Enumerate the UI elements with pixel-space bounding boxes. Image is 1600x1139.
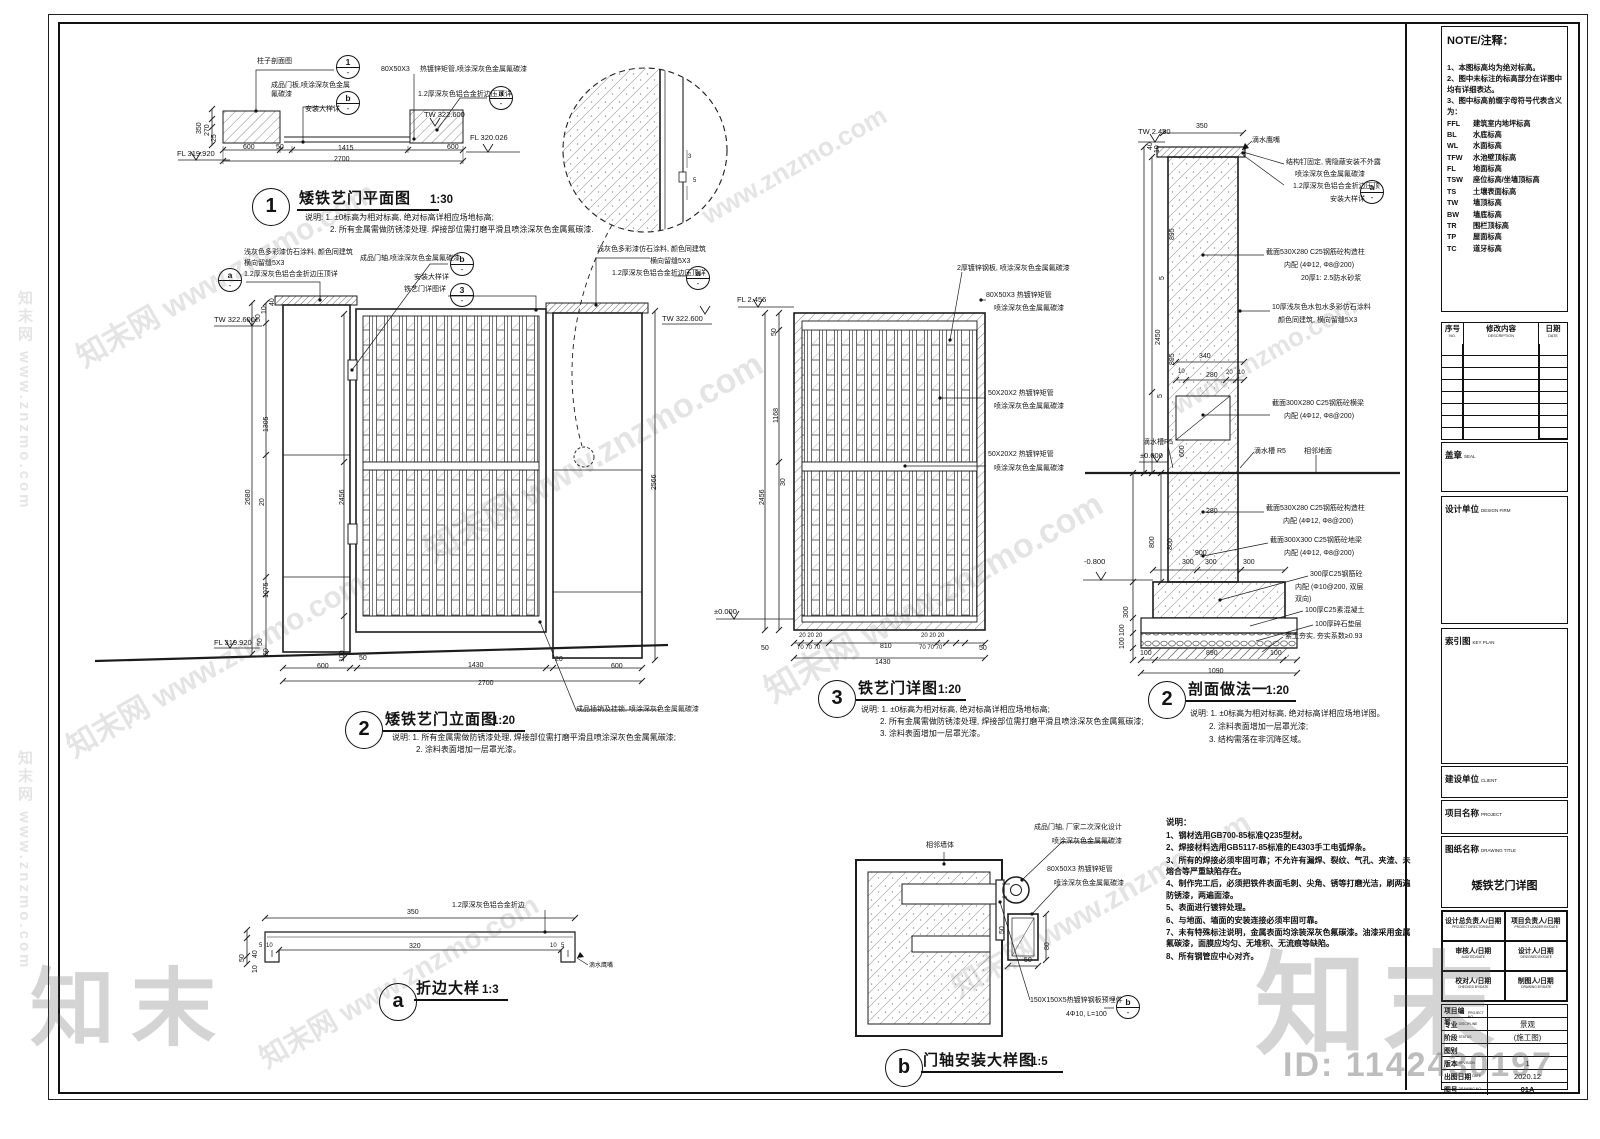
sect-label: 双向) bbox=[1295, 596, 1311, 604]
signature-cell: 制图人/日期DRAWING BY/DATE bbox=[1505, 971, 1568, 1001]
watermark-vertical: 知末网 www.znzmo.com bbox=[14, 750, 35, 970]
client-box: 建设单位CLIENT bbox=[1441, 766, 1568, 798]
dim-label: 70 70 70 bbox=[797, 645, 820, 652]
plan-label: 氟碳漆 bbox=[271, 91, 292, 99]
signature-grid: 设计总负责人/日期PROJECT DIRECTOR/DATE 项目负责人/日期P… bbox=[1441, 910, 1568, 1002]
hinge-label: 喷涂深灰色金属氟碳漆 bbox=[1054, 880, 1124, 888]
drawing-number: 2 bbox=[345, 711, 383, 749]
drawing-note: 说明: 1. 所有金属需做防锈漆处理, 焊接部位需打磨平滑且喷涂深灰色金属氟碳漆… bbox=[392, 733, 676, 742]
dim-label: 10 bbox=[261, 306, 269, 314]
dim-label: 900 bbox=[1195, 550, 1207, 558]
plan-label: 安装大样详 bbox=[305, 106, 340, 114]
detail-callout: 3- bbox=[450, 283, 474, 307]
cad-sheet: 柱子剖面图1-80X50X3热镀锌矩管,喷涂深灰色金属氟碳漆成品门板,喷涂深灰色… bbox=[0, 0, 1600, 1139]
plan-callout-label: 柱子剖面图 bbox=[257, 58, 292, 66]
revision-row bbox=[1441, 404, 1568, 416]
elev-label: 安装大样详 bbox=[414, 274, 449, 282]
plan-label: 成品门板,喷涂深灰色金属 bbox=[271, 82, 350, 90]
meta-table: 项目编号PROJECT NO. 专业DISCIPLINE景观 阶段STATUS(… bbox=[1441, 1004, 1568, 1090]
dim-label: 50 bbox=[999, 926, 1007, 934]
sect-label: 内配 (4Φ12, Φ8@200) bbox=[1283, 518, 1353, 526]
dim-label: 50 bbox=[255, 314, 263, 322]
detail-callout: 1- bbox=[336, 55, 360, 79]
dim-label: 5 bbox=[259, 943, 262, 950]
dim-label: 50 bbox=[1024, 957, 1032, 965]
dim-label: 100 bbox=[339, 650, 347, 662]
general-note: 2、焊接材料选用GB5117-85标准的E4303手工电弧焊条。 bbox=[1166, 842, 1416, 853]
sect-label: 滴水槽R5 bbox=[1143, 439, 1173, 447]
general-note: 5、表面进行镀锌处理。 bbox=[1166, 902, 1416, 913]
dim-label: 10 bbox=[1178, 369, 1185, 376]
dim-label: 800 bbox=[1167, 538, 1175, 550]
revision-row bbox=[1441, 356, 1568, 368]
signature-cell: 校对人/日期CHECKED BY/DATE bbox=[1442, 971, 1505, 1001]
dim-label: 5 bbox=[693, 178, 696, 185]
key-plan-box: 索引图KEY PLAN bbox=[1441, 628, 1568, 764]
revision-row bbox=[1441, 416, 1568, 428]
meta-row: 图别 bbox=[1442, 1044, 1567, 1057]
level-label: TW 322.600 bbox=[424, 111, 465, 120]
dim-label: 20 bbox=[555, 656, 563, 664]
drawing-scale: 1:30 bbox=[430, 194, 453, 207]
gate-label: 喷涂深灰色金属氟碳漆 bbox=[994, 305, 1064, 313]
drawing-scale: 1:20 bbox=[938, 684, 961, 697]
dim-label: 2700 bbox=[478, 680, 494, 688]
plan-label: 80X50X3 bbox=[381, 66, 410, 74]
drawing-number: 3 bbox=[818, 680, 856, 718]
sect-label: 截面530X280 C25钢筋砼构造柱 bbox=[1266, 505, 1365, 513]
sect-label: 100厚碎石垫层 bbox=[1315, 621, 1362, 629]
dim-label: 60 bbox=[263, 648, 271, 656]
meta-row: 出图日期DATE2020.12 bbox=[1442, 1070, 1567, 1083]
dim-label: 40 bbox=[269, 298, 277, 306]
sect-label: 100厚C25素混凝土 bbox=[1305, 607, 1365, 615]
meta-row: 图号DRAWING NO.01A bbox=[1442, 1083, 1567, 1095]
detail-callout: b- bbox=[1116, 995, 1140, 1019]
sect-label: 内配 (4Φ12, Φ8@200) bbox=[1284, 413, 1354, 421]
dim-label: 2680 bbox=[245, 489, 253, 505]
dim-label: 5 bbox=[1157, 394, 1165, 398]
dim-label: 50 bbox=[257, 638, 265, 646]
dim-label: 1305 bbox=[263, 416, 271, 432]
dim-label: 600 bbox=[243, 144, 255, 152]
dim-label: 350 bbox=[1196, 123, 1208, 131]
gate-label: 80X50X3 热镀锌矩管 bbox=[986, 292, 1052, 300]
sect-label: 300厚C25钢筋砼 bbox=[1310, 571, 1363, 579]
dim-label: 40 bbox=[252, 950, 260, 958]
hinge-label: 喷涂深灰色金属氟碳漆 bbox=[1052, 838, 1122, 846]
revision-row bbox=[1441, 392, 1568, 404]
dim-label: 600 bbox=[1179, 445, 1187, 457]
sect-label: 滴水槽 R5 bbox=[1254, 448, 1286, 456]
general-note: 3、所有的焊接必须牢固可靠；不允许有漏焊、裂纹、气孔、夹渣、未熔合等严重缺陷存在… bbox=[1166, 855, 1416, 878]
elev-label: 1.2厚深灰色铝合金折边压顶详 bbox=[244, 271, 338, 279]
dim-label: 2456 bbox=[759, 489, 767, 505]
dim-label: 895 bbox=[1169, 353, 1177, 365]
hinge-label: 4Φ10, L=100 bbox=[1066, 1011, 1107, 1019]
level-label: ±0.000 bbox=[1140, 452, 1163, 461]
revision-row bbox=[1441, 380, 1568, 392]
drawing-number: a bbox=[379, 983, 417, 1021]
sect-label: 滴水鹰嘴 bbox=[1252, 137, 1280, 145]
hinge-label: 150X150X5热镀锌钢板预埋件 bbox=[1030, 997, 1123, 1005]
elev-label: 浅灰色多彩漆仿石涂料, 颜色同建筑 bbox=[597, 246, 706, 254]
general-notes-title: 说明： bbox=[1166, 816, 1416, 828]
dim-label: 25 bbox=[211, 134, 219, 142]
dim-label: 20 bbox=[1226, 370, 1233, 377]
dim-label: 3 bbox=[688, 154, 691, 161]
drawing-number: b bbox=[885, 1049, 923, 1087]
general-note: 8、所有钢管应中心对齐。 bbox=[1166, 951, 1416, 962]
dim-label: 100 bbox=[1119, 624, 1127, 636]
general-notes: 说明： 1、钢材选用GB700-85标准Q235型材。 2、焊接材料选用GB51… bbox=[1166, 816, 1416, 963]
dim-label: 20 20 20 bbox=[799, 633, 822, 640]
design-firm-box: 设计单位DESIGN FIRM bbox=[1441, 496, 1568, 624]
gate-label: 喷涂深灰色金属氟碳漆 bbox=[994, 465, 1064, 473]
detail-callout: a- bbox=[218, 268, 242, 292]
general-note: 4、制作完工后，必须把铁件表面毛刺、尖角、锈等打磨光洁，刷两遍防锈漆，两遍面漆。 bbox=[1166, 878, 1416, 901]
drawing-note: 3. 涂料表面增加一层罩光漆。 bbox=[880, 729, 985, 738]
detail-callout: a- bbox=[686, 266, 710, 290]
dim-label: 50 bbox=[761, 645, 769, 653]
title-block: 序号NO. 修改内容DESCRIPTION 日期DATE 盖章SEAL 设计单位… bbox=[1441, 22, 1572, 1090]
dim-label: 50 bbox=[239, 954, 247, 962]
dim-label: 10 bbox=[550, 943, 557, 950]
dim-label: 600 bbox=[447, 144, 459, 152]
drawing-note: 2. 涂料表面增加一层罩光漆。 bbox=[416, 745, 521, 754]
dim-label: 70 70 70 bbox=[919, 645, 942, 652]
sect-label: 内配 (4Φ12, Φ8@200) bbox=[1284, 550, 1354, 558]
meta-row: 项目编号PROJECT NO. bbox=[1442, 1005, 1567, 1018]
level-label: FL 2.456 bbox=[737, 296, 766, 305]
dim-label: 50 bbox=[771, 328, 779, 336]
dim-label: 50 bbox=[359, 655, 367, 663]
elev-label: 浅灰色多彩漆仿石涂料, 颜色同建筑 bbox=[244, 249, 353, 257]
sect-label: 截面530X280 C25钢筋砼构造柱 bbox=[1266, 249, 1365, 257]
dim-label: 100 bbox=[1119, 637, 1127, 649]
drawing-title: 矮铁艺门平面图 bbox=[297, 190, 439, 211]
dim-label: 600 bbox=[317, 663, 329, 671]
fold-label: 1.2厚深灰色铝合金折边 bbox=[452, 902, 525, 910]
level-label: FL 319.920 bbox=[177, 150, 215, 159]
dim-label: 1090 bbox=[1208, 668, 1224, 676]
dim-label: 10 bbox=[266, 943, 273, 950]
dim-label: 350 bbox=[407, 909, 419, 917]
dim-label: 2450 bbox=[1155, 329, 1163, 345]
drawing-title-value: 矮铁艺门详图 bbox=[1442, 877, 1567, 893]
dim-label: 300 bbox=[1182, 559, 1194, 567]
dim-label: 350 bbox=[196, 122, 204, 134]
dim-label: 300 bbox=[1205, 559, 1217, 567]
hinge-label: 80X50X3 热镀锌矩管 bbox=[1047, 866, 1113, 874]
sect-label: 相邻地面 bbox=[1304, 448, 1332, 456]
gate-label: 50X20X2 热镀锌矩管 bbox=[988, 451, 1054, 459]
hinge-label: 相邻墙体 bbox=[926, 842, 954, 850]
dim-label: 800 bbox=[1149, 536, 1157, 548]
dim-label: 300 bbox=[1243, 559, 1255, 567]
meta-row: 版本REVISION1 bbox=[1442, 1057, 1567, 1070]
drawing-note: 说明: 1. ±0标高为相对标高, 绝对标高详相应场地标高; bbox=[861, 705, 1050, 714]
dim-label: 600 bbox=[611, 663, 623, 671]
project-box: 项目名称PROJECT bbox=[1441, 800, 1568, 834]
detail-callout: a- bbox=[489, 86, 513, 110]
sect-label: 安装大样详 bbox=[1330, 196, 1365, 204]
level-label: TW 2.450 bbox=[1138, 128, 1171, 137]
dim-label: 1415 bbox=[338, 145, 354, 153]
drawing-note: 2. 涂料表面增加一层罩光漆; bbox=[1209, 722, 1308, 731]
drawing-scale: 1:5 bbox=[1031, 1056, 1048, 1069]
drawing-note: 说明: 1. ±0标高为相对标高, 绝对标高详相应场地标高; bbox=[305, 213, 494, 222]
dim-label: 20 20 20 bbox=[921, 633, 944, 640]
watermark-vertical: 知末网 www.znzmo.com bbox=[14, 290, 35, 510]
sect-label: 内配 (4Φ12, Φ8@200) bbox=[1284, 262, 1354, 270]
hinge-label: 成品门轴, 厂家二次深化设计 bbox=[1034, 824, 1122, 832]
sect-label: 10厚浅灰色水包水多彩仿石涂料 bbox=[1272, 304, 1371, 312]
drawing-note: 说明: 1. ±0标高为相对标高, 绝对标高详相应场地详图。 bbox=[1190, 709, 1385, 718]
general-note: 6、与地面、墙面的安装连接必须牢固可靠。 bbox=[1166, 915, 1416, 926]
dim-label: 1168 bbox=[773, 408, 781, 423]
dim-label: 5 bbox=[561, 943, 564, 950]
sect-label: 颜色同建筑, 横向留缝5X3 bbox=[1278, 317, 1357, 325]
sect-label: 素土夯实, 夯实系数≥0.93 bbox=[1285, 633, 1362, 641]
dim-label: 280 bbox=[1206, 372, 1218, 380]
dim-label: 320 bbox=[409, 943, 421, 951]
level-label: TW 322.600 bbox=[214, 316, 255, 325]
elev-label: 横向留缝5X3 bbox=[244, 260, 284, 268]
level-label: FL 319.920 bbox=[214, 639, 252, 648]
dim-label: 895 bbox=[1169, 228, 1177, 240]
drawing-number: 2 bbox=[1148, 681, 1186, 719]
dim-label: 810 bbox=[880, 643, 892, 651]
meta-row: 专业DISCIPLINE景观 bbox=[1442, 1018, 1567, 1031]
dim-label: 30 bbox=[780, 478, 788, 486]
dim-label: 1430 bbox=[875, 659, 891, 667]
dim-label: 280 bbox=[1206, 508, 1218, 516]
dim-label: 10 bbox=[252, 965, 260, 973]
drawing-note: 2. 所有金属需做防锈漆处理, 焊接部位需打磨平滑且喷涂深灰色金属氟碳漆; bbox=[880, 717, 1144, 726]
drawing-scale: 1:3 bbox=[482, 984, 499, 997]
revision-row bbox=[1441, 428, 1568, 440]
dim-label: 10 bbox=[1154, 145, 1162, 153]
level-label: -0.800 bbox=[1084, 558, 1105, 567]
dim-label: 80 bbox=[1044, 942, 1052, 950]
sect-label: 20厚1: 2.5防水砂浆 bbox=[1301, 275, 1361, 283]
level-label: TW 322.600 bbox=[662, 315, 703, 324]
revision-row bbox=[1441, 344, 1568, 356]
dim-label: 50 bbox=[979, 645, 987, 653]
dim-label: 2700 bbox=[334, 156, 350, 164]
dim-label: 5 bbox=[1159, 276, 1167, 280]
plan-label: 热镀锌矩管,喷涂深灰色金属氟碳漆 bbox=[420, 66, 527, 74]
dim-label: 100 bbox=[1140, 650, 1152, 658]
dim-label: 340 bbox=[1199, 353, 1211, 361]
general-note: 1、钢材选用GB700-85标准Q235型材。 bbox=[1166, 830, 1416, 841]
revision-rows bbox=[1441, 344, 1568, 440]
detail-callout: b- bbox=[450, 252, 474, 276]
elev-label: 铁艺门详图详 bbox=[404, 286, 446, 294]
drawing-note: 2. 所有金属需做防锈漆处理. 焊接部位需打磨平滑且喷涂深灰色金属氟碳漆. bbox=[330, 225, 594, 234]
note-panel-box bbox=[1441, 26, 1568, 312]
sect-label: 内配 (Φ10@200, 双层 bbox=[1295, 584, 1363, 592]
drawing-scale: 1:20 bbox=[1266, 685, 1289, 698]
gate-label: 50X20X2 热镀锌矩管 bbox=[988, 390, 1054, 398]
sect-label: 结构钉固定, 需隐蔽安装不外露 bbox=[1286, 159, 1381, 167]
sect-label: 喷涂深灰色金属氟碳漆 bbox=[1295, 171, 1365, 179]
gate-label: 喷涂深灰色金属氟碳漆 bbox=[994, 403, 1064, 411]
dim-label: 300 bbox=[1123, 606, 1131, 618]
drawing-note: 3. 结构需落在非沉降区域。 bbox=[1209, 735, 1306, 744]
dim-label: 100 bbox=[1270, 650, 1282, 658]
dim-label: 890 bbox=[1206, 650, 1218, 658]
signature-cell: 设计总负责人/日期PROJECT DIRECTOR/DATE bbox=[1442, 911, 1505, 941]
elev-label: 成品门轴,喷涂深灰色金属氟碳漆 bbox=[360, 255, 460, 263]
sect-label: 截面300X300 C25钢筋砼地梁 bbox=[1270, 537, 1362, 545]
level-label: ±0.000 bbox=[714, 608, 737, 617]
signature-cell: 设计人/日期DESIGNED BY/DATE bbox=[1505, 941, 1568, 971]
dim-label: 1430 bbox=[468, 662, 484, 670]
fold-label: 滴水鹰嘴 bbox=[589, 963, 613, 970]
dim-label: 50 bbox=[276, 144, 284, 152]
signature-cell: 项目负责人/日期PROJECT LEADER BY/DATE bbox=[1505, 911, 1568, 941]
drawing-title-box: 图纸名称DRAWING TITLE 矮铁艺门详图 bbox=[1441, 836, 1568, 908]
sect-label: 截面300X280 C25钢筋砼横梁 bbox=[1272, 400, 1364, 408]
dim-label: 10 bbox=[1238, 370, 1245, 377]
elev-label: 成品插销及挂锁, 喷涂深灰色金属氟碳漆 bbox=[576, 706, 699, 714]
drawing-number: 1 bbox=[252, 188, 290, 226]
gate-label: 2厚镀锌钢板, 喷涂深灰色金属氟碳漆 bbox=[957, 265, 1070, 273]
dim-label: 2566 bbox=[651, 474, 659, 490]
dim-label: 1075 bbox=[263, 582, 271, 598]
drawing-scale: 1:20 bbox=[492, 715, 515, 728]
revision-row bbox=[1441, 368, 1568, 380]
dim-label: 2456 bbox=[339, 489, 347, 505]
elev-label: 横向留缝5X3 bbox=[650, 258, 690, 266]
meta-row: 阶段STATUS(施工图) bbox=[1442, 1031, 1567, 1044]
signature-cell: 审核人/日期AUDITED/DATE bbox=[1442, 941, 1505, 971]
dim-label: 20 bbox=[259, 498, 267, 506]
level-label: FL 320.026 bbox=[470, 134, 508, 143]
seal-box: 盖章SEAL bbox=[1441, 442, 1568, 492]
general-note: 7、未有特殊标注说明，金属表面均涂装深灰色氟碳漆。油漆采用金属氟碳漆，面膜应均匀… bbox=[1166, 927, 1416, 950]
